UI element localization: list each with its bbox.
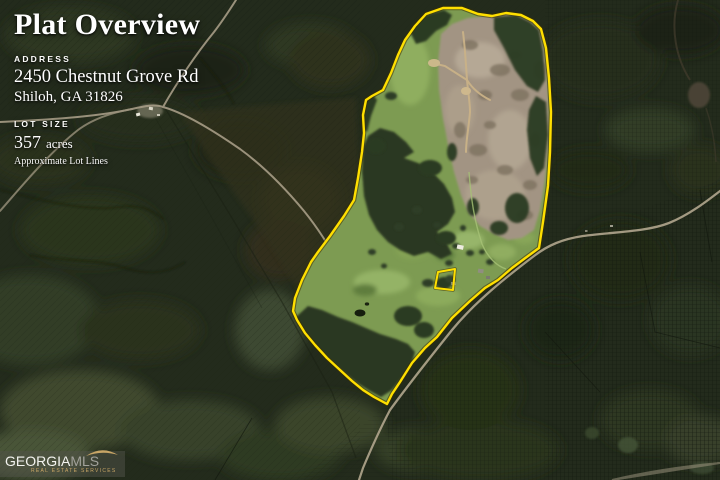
plat-overview-image: Plat Overview ADDRESS 2450 Chestnut Grov… (0, 0, 720, 480)
page-title: Plat Overview (14, 8, 200, 41)
lot-size-label: LOT SIZE (14, 119, 200, 129)
georgia-mls-logo: GEORGIAMLS REAL ESTATE SERVICES (0, 451, 125, 477)
lot-size-value: 357 (14, 132, 41, 153)
lot-size-unit: acres (46, 136, 73, 152)
logo-name: GEORGIAMLS (5, 454, 117, 468)
logo-georgia-text: GEORGIA (5, 454, 70, 468)
info-overlay: Plat Overview ADDRESS 2450 Chestnut Grov… (14, 8, 200, 167)
address-line2: Shiloh, GA 31826 (14, 89, 200, 106)
logo-tagline: REAL ESTATE SERVICES (31, 469, 117, 474)
address-line1: 2450 Chestnut Grove Rd (14, 67, 200, 87)
pond (355, 310, 366, 317)
lot-size-row: 357 acres (14, 132, 200, 153)
logo-swoosh-icon (85, 448, 119, 457)
lot-lines-note: Approximate Lot Lines (14, 156, 200, 167)
address-label: ADDRESS (14, 54, 200, 64)
